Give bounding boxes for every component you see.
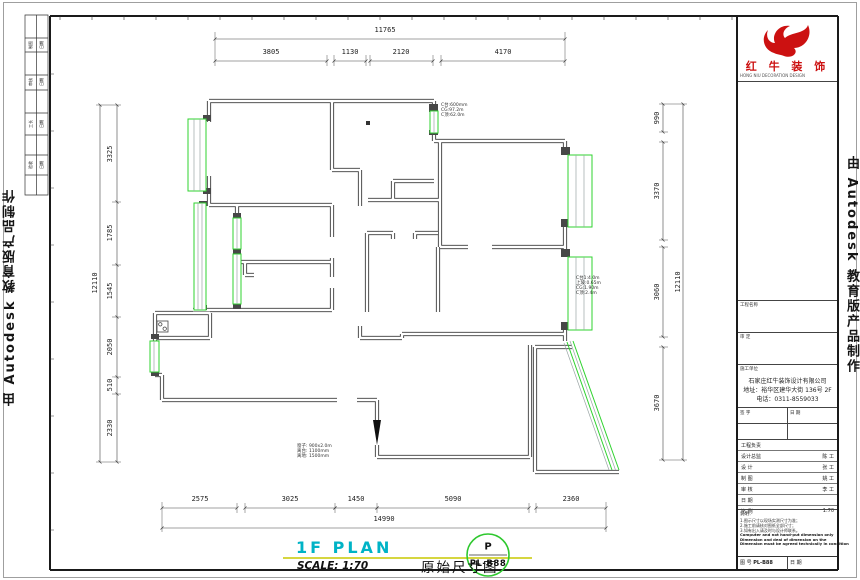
window-annotation-1: C台:600mmCG:97.2mC顶:62.0m — [441, 103, 468, 118]
company-info: 石家庄红牛装饰设计有限公司地址：裕华区建华大街 136号 2F电话：0311-8… — [738, 377, 837, 404]
signature-label: 签 字 — [738, 408, 787, 423]
stamp-letter: P — [484, 542, 491, 553]
staff-row-value: 张 工 — [822, 464, 834, 471]
staff-row-label: 工程负责 — [741, 442, 761, 449]
dim-label-left: 2050 — [106, 338, 114, 357]
revision-strip-cell: 验收 — [28, 161, 34, 169]
approve-cell: 审 定 — [738, 332, 837, 364]
staff-row-label: 制 图 — [741, 475, 753, 482]
dim-label-left: 1785 — [106, 224, 114, 243]
signature-value — [738, 424, 787, 439]
dim-label-right-overall: 12110 — [674, 270, 682, 293]
dim-label-top: 2120 — [392, 48, 411, 56]
dim-label-bottom: 5090 — [444, 495, 463, 503]
dim-label-top-overall: 11765 — [373, 26, 396, 34]
staff-row-label: 日 期 — [741, 497, 753, 504]
window-annotation-3: 窗子: 900x2.0m离台: 1100mm离地: 1500mm — [297, 444, 332, 459]
dim-label-top: 3805 — [262, 48, 281, 56]
footer-date-cell: 日 期 — [787, 557, 836, 570]
revision-strip-cell: 审核 — [28, 78, 34, 86]
dim-label-right: 3370 — [653, 182, 661, 201]
revision-strip-cell: 日期 — [39, 41, 45, 49]
staff-row-value: 陈 工 — [822, 453, 834, 460]
signature-header-row: 签 字 日 期 — [738, 407, 837, 423]
scale-label: SCALE: 1:70 — [297, 560, 368, 572]
dim-label-top: 4170 — [494, 48, 513, 56]
staff-row: 工程负责 — [738, 440, 837, 451]
dim-label-bottom: 2575 — [191, 495, 210, 503]
drawing-no-value: PL-B88 — [753, 560, 773, 566]
staff-rows: 工程负责设计总监陈 工设 计张 工制 图姚 工审 核李 工日 期比 例1:70 — [738, 439, 837, 509]
staff-row: 审 核李 工 — [738, 484, 837, 495]
notes-chinese: 1.图示尺寸以现场实测尺寸为准；2.施工前请核对图纸全部尺寸；3.如有出入请及时… — [738, 518, 837, 533]
footer-date-label: 日 期 — [790, 560, 802, 566]
staff-row-value: 姚 工 — [822, 475, 834, 482]
title-block-divider — [738, 81, 837, 82]
staff-row-label: 设计总监 — [741, 453, 761, 460]
notes-cell: 说明： 1.图示尺寸以现场实测尺寸为准；2.施工前请核对图纸全部尺寸；3.如有出… — [738, 509, 837, 556]
dim-label-left-overall: 12110 — [91, 271, 99, 294]
company-line: 电话：0311-8559033 — [738, 395, 837, 404]
brand-name: 红 牛 装 饰 — [738, 58, 837, 74]
company-line: 地址：裕华区建华大街 136号 2F — [738, 386, 837, 395]
brand-tagline: HONG NIU DECORATION DESIGN — [740, 73, 835, 78]
staff-row: 设计总监陈 工 — [738, 451, 837, 462]
revision-strip-cell: 制图 — [28, 41, 34, 49]
plan-title: 1F PLAN — [296, 538, 392, 557]
dim-label-right: 990 — [653, 111, 661, 126]
dim-label-left: 1545 — [106, 282, 114, 301]
dim-label-left: 510 — [106, 378, 114, 393]
dim-label-left: 2330 — [106, 419, 114, 438]
window-annotation-2: C台1:4.0m上玻:0.65mCG:1.90mC顶:2.4m — [576, 276, 601, 296]
revision-strip-cell: 日期 — [39, 120, 45, 128]
dim-label-bottom: 3025 — [281, 495, 300, 503]
staff-row-value: 李 工 — [822, 486, 834, 493]
signature-date-value — [787, 424, 836, 439]
staff-row-label: 审 核 — [741, 486, 753, 493]
dim-label-right: 3060 — [653, 283, 661, 302]
label-overlay: 1176538051130212041702575302514505090236… — [0, 0, 860, 580]
revision-strip-cell: 工长 — [28, 120, 34, 128]
autodesk-watermark-right: 由 Autodesk 教育版产品制作 — [842, 156, 860, 374]
title-block: 红 牛 装 饰 HONG NIU DECORATION DESIGN 工程名称 … — [738, 16, 837, 570]
revision-strip-cell: 日期 — [39, 78, 45, 86]
dim-label-bottom: 1450 — [347, 495, 366, 503]
note-line-en: Dimension must be agreed technically in … — [738, 542, 837, 547]
signature-date-label: 日 期 — [787, 408, 836, 423]
dim-label-bottom: 2360 — [562, 495, 581, 503]
notes-english: Computer and not hand-put dimension only… — [738, 533, 837, 547]
brand-logo-icon — [738, 17, 837, 59]
notes-title: 说明： — [738, 510, 837, 518]
drawing-no-label: 图 号 — [740, 560, 752, 566]
revision-strip-cell: 日期 — [39, 161, 45, 169]
drawing-sheet: 1176538051130212041702575302514505090236… — [0, 0, 860, 580]
company-cell: 施工单位 石家庄红牛装饰设计有限公司地址：裕华区建华大街 136号 2F电话：0… — [738, 364, 837, 407]
signature-empty-row — [738, 423, 837, 439]
dim-label-left: 3325 — [106, 145, 114, 164]
dim-label-right: 3670 — [653, 394, 661, 413]
title-block-footer: 图 号 PL-B88 日 期 — [738, 556, 837, 570]
stamp-code: PL-B88 — [470, 559, 506, 569]
autodesk-watermark-left: 由 Autodesk 教育版产品制作 — [1, 188, 20, 406]
company-line: 石家庄红牛装饰设计有限公司 — [738, 377, 837, 386]
drawing-no-cell: 图 号 PL-B88 — [738, 557, 787, 570]
approve-label: 审 定 — [738, 333, 837, 341]
project-name-label: 工程名称 — [738, 301, 837, 309]
dim-label-top: 1130 — [341, 48, 360, 56]
dim-label-bottom-overall: 14990 — [372, 515, 395, 523]
staff-row: 设 计张 工 — [738, 462, 837, 473]
staff-row: 日 期 — [738, 495, 837, 506]
company-label: 施工单位 — [738, 365, 837, 373]
project-name-cell: 工程名称 — [738, 300, 837, 332]
staff-row: 制 图姚 工 — [738, 473, 837, 484]
staff-row-label: 设 计 — [741, 464, 753, 471]
